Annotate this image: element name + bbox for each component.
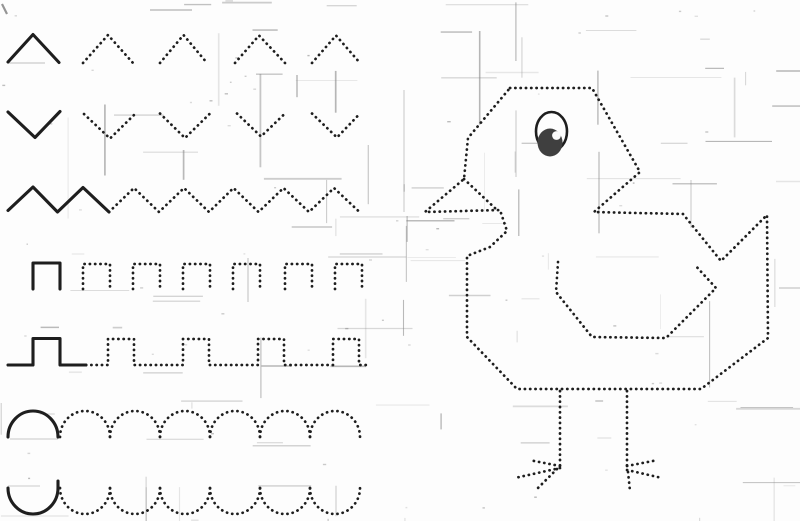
row-7-bowls-dotted-stroke-6 [260, 488, 310, 514]
row-6-arches-solid-stroke-0 [8, 411, 58, 437]
row-7-bowls-dotted-stroke-3 [110, 488, 160, 514]
row-1-chevrons-up-dotted-stroke-1 [83, 35, 133, 63]
row-6-arches-dotted-stroke-6 [310, 411, 360, 437]
row-6-arches-dotted-stroke-2 [110, 411, 160, 437]
row-4-square-caps-solid-stroke-0 [33, 263, 60, 289]
row-4-square-caps-dotted-stroke-4 [233, 264, 260, 289]
row-5-square-wave-solid-stroke-0 [8, 339, 86, 366]
row-6-arches-dotted-stroke-1 [60, 411, 110, 437]
tracing-worksheet-canvas [0, 0, 800, 521]
row-7-bowls-dotted-stroke-7 [310, 488, 360, 514]
row-3-zigzag-dotted-stroke-1 [109, 188, 360, 212]
scan-noise-layer [0, 0, 800, 521]
bird-beak-inner-edge [464, 179, 497, 210]
row-6-arches [8, 411, 360, 437]
row-7-bowls-dotted-stroke-4 [160, 488, 210, 514]
row-4-square-caps-dotted-stroke-5 [285, 264, 312, 289]
bird-right-foot [627, 460, 662, 491]
tracing-pattern-rows [8, 35, 369, 515]
chick-figure [425, 88, 768, 491]
worksheet-page [0, 0, 800, 521]
bird-left-foot [515, 460, 560, 488]
scan-artifact-0 [2, 4, 7, 14]
row-6-arches-dotted-stroke-5 [260, 411, 310, 437]
row-7-bowls-dotted-stroke-5 [210, 488, 260, 514]
bird-wing [556, 262, 716, 338]
row-1-chevrons-up-dotted-stroke-3 [235, 36, 285, 64]
row-1-chevrons-up-solid-stroke-0 [8, 35, 59, 63]
row-4-square-caps-dotted-stroke-6 [335, 264, 362, 289]
row-5-square-wave-dotted-stroke-1 [86, 339, 369, 365]
row-5-square-wave [8, 339, 369, 366]
row-3-zigzag-solid-stroke-0 [8, 187, 109, 212]
row-2-chevrons-down-dotted-stroke-4 [312, 114, 360, 138]
row-4-square-caps [33, 263, 362, 289]
row-2-chevrons-down-dotted-stroke-2 [160, 114, 210, 139]
row-6-arches-dotted-stroke-3 [160, 411, 210, 437]
row-1-chevrons-up [8, 35, 360, 64]
row-2-chevrons-down-dotted-stroke-1 [84, 114, 135, 139]
row-6-arches-dotted-stroke-4 [210, 411, 260, 437]
row-4-square-caps-dotted-stroke-2 [133, 264, 160, 289]
bird-eye-highlight [552, 131, 561, 140]
row-4-square-caps-dotted-stroke-1 [83, 264, 110, 289]
row-7-bowls-solid-stroke-0 [8, 488, 58, 514]
row-3-zigzag [8, 187, 360, 212]
bird-body-outline [425, 88, 768, 389]
bird-tracing-figure [425, 88, 768, 491]
row-1-chevrons-up-dotted-stroke-2 [160, 35, 207, 63]
row-1-chevrons-up-dotted-stroke-4 [312, 36, 360, 64]
row-4-square-caps-dotted-stroke-3 [183, 264, 210, 289]
row-2-chevrons-down [8, 112, 360, 139]
row-7-bowls-dotted-stroke-2 [60, 488, 110, 514]
